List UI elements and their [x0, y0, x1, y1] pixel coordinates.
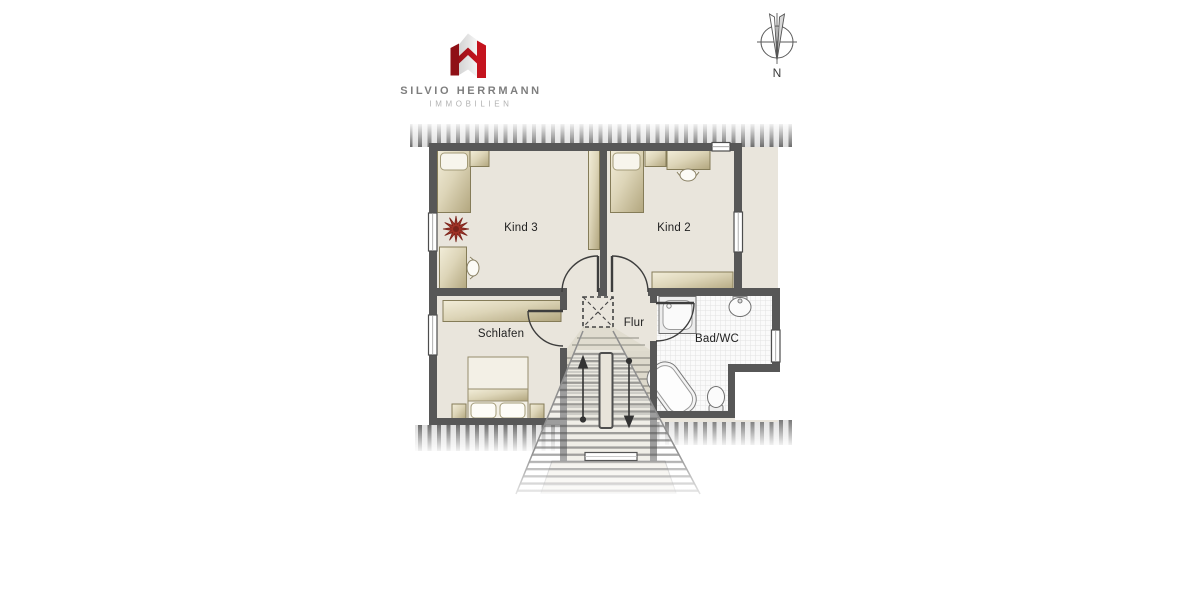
wall-schlafen-flur-upper: [560, 288, 567, 310]
wall-flur-bad-upper: [650, 288, 657, 303]
wall-bad-top: [648, 288, 780, 296]
compass-rose-icon: [757, 13, 797, 64]
kind3-pillow: [441, 153, 468, 170]
schlafen-nightstand-right: [530, 404, 544, 419]
toilet: [708, 387, 725, 408]
building-notch: [735, 370, 795, 420]
wall-stub-flur: [598, 288, 607, 296]
stair-spine-wall: [600, 353, 613, 428]
schlafen-pillow-right: [500, 403, 525, 418]
wall-kind3-schlafen: [429, 288, 562, 296]
compass-north-label: N: [773, 66, 782, 80]
kind3-shelf: [470, 151, 489, 167]
room-label-kind3: Kind 3: [504, 222, 538, 234]
company-logo-icon: [451, 34, 487, 79]
wall-outer-left: [429, 143, 437, 425]
wall-bad-notch-h: [728, 364, 780, 372]
kind3-wardrobe: [589, 151, 600, 250]
schlafen-nightstand-left: [452, 404, 466, 419]
kind2-pillow: [613, 153, 640, 170]
kind2-shelf: [645, 151, 666, 167]
floorplan-drawing: [0, 0, 1200, 600]
room-label-schlafen: Schlafen: [478, 328, 524, 340]
room-label-badwc: Bad/WC: [695, 333, 739, 345]
room-label-kind2: Kind 2: [657, 222, 691, 234]
wall-outer-top: [429, 143, 742, 151]
wall-bad-bottom: [650, 411, 735, 418]
floorplan-page: SILVIO HERRMANN IMMOBILIEN N Kind 3 Kind…: [0, 0, 1200, 600]
brand-name: SILVIO HERRMANN: [400, 85, 541, 97]
brand-division: IMMOBILIEN: [429, 100, 512, 109]
schlafen-pillow-left: [471, 403, 496, 418]
kind3-desk: [440, 247, 467, 290]
room-label-flur: Flur: [624, 317, 645, 329]
wall-divider-kind3-kind2: [600, 143, 607, 296]
wall-bad-notch-v: [728, 364, 735, 418]
kind2-desk: [667, 151, 710, 170]
